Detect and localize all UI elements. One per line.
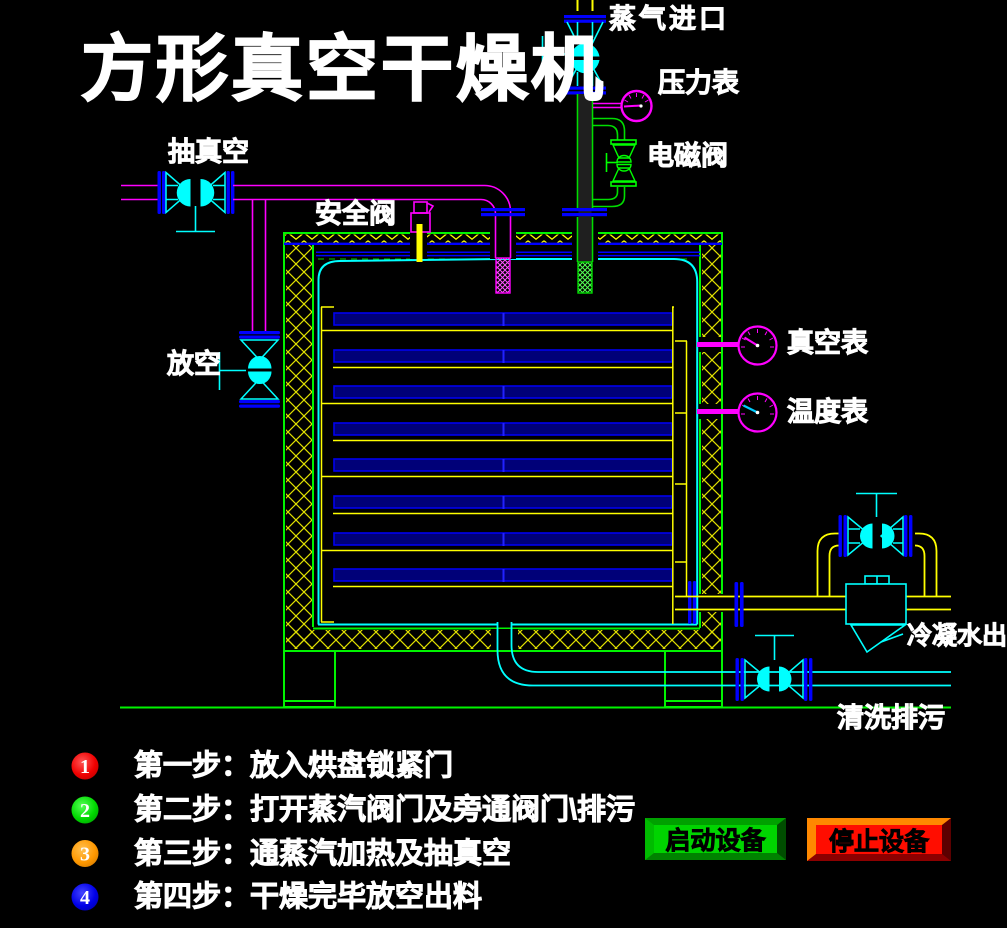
svg-text:2: 2 (80, 800, 90, 822)
svg-text:1: 1 (80, 756, 90, 778)
svg-text:3: 3 (80, 844, 90, 866)
svg-text:4: 4 (80, 887, 90, 909)
